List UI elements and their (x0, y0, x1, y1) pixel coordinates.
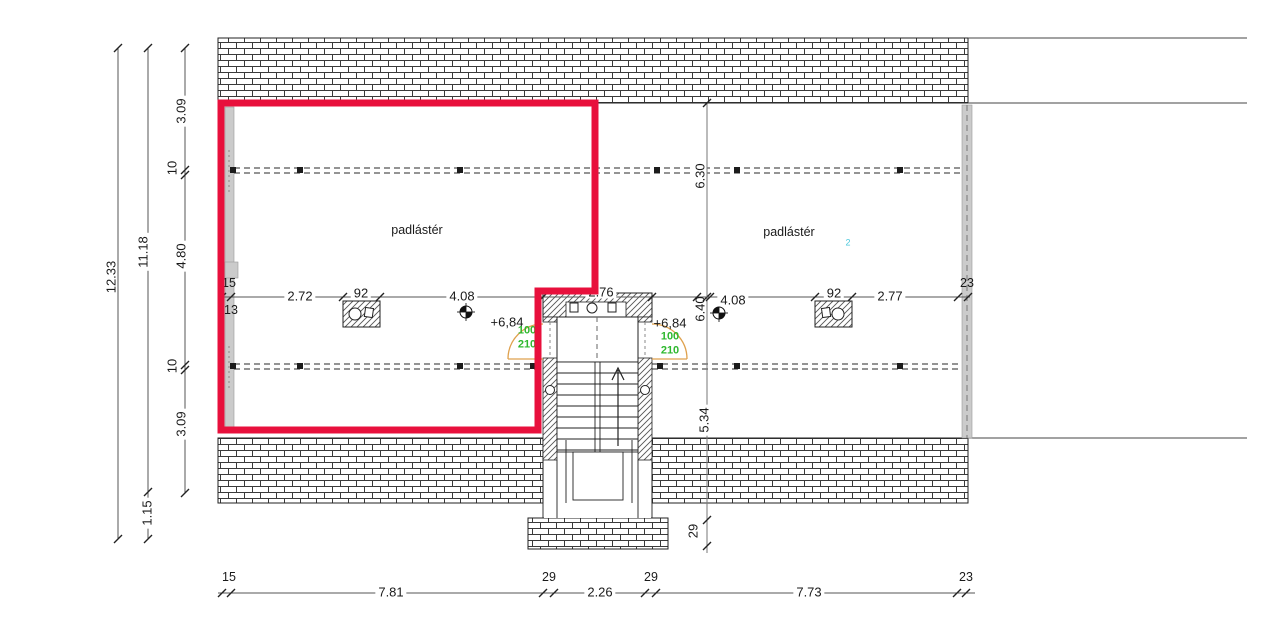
dim-b-w1: 15 (222, 571, 236, 584)
dim-stair-width: 2.76 (585, 286, 616, 299)
door-size-right-height: 210 (661, 346, 679, 357)
dim-eave: 1.15 (141, 497, 154, 528)
dim-axis-wall: 29 (687, 524, 700, 538)
floor-plan-canvas: 12.33 11.18 1.15 3.09 10 4.80 10 3.09 6.… (0, 0, 1280, 644)
dim-chimney-right: 92 (824, 287, 844, 300)
dim-h1: 2.72 (284, 290, 315, 303)
dim-v2: 10 (166, 161, 179, 175)
dim-inner-height: 11.18 (137, 233, 150, 271)
door-size-left-height: 210 (518, 340, 536, 351)
room-label-right: padlástér (763, 226, 814, 239)
level-marker-icon (457, 303, 475, 321)
dim-v1: 3.09 (175, 95, 188, 126)
right-gable-wall (962, 105, 972, 438)
dim-b3: 7.73 (793, 586, 824, 599)
top-wall (218, 38, 1247, 103)
room-index-right: 2 (845, 239, 850, 248)
left-gable-wall (225, 107, 238, 431)
dim-v5: 3.09 (175, 408, 188, 439)
entry-porch-wall (528, 518, 668, 549)
dim-b2: 2.26 (584, 586, 615, 599)
dim-v3: 4.80 (175, 240, 188, 271)
dim-axis-low: 5.34 (698, 404, 711, 435)
chimney-left (343, 301, 380, 327)
dim-wall-left-a: 15 (222, 277, 236, 290)
dim-b-w3: 29 (644, 571, 658, 584)
room-label-left: padlástér (391, 224, 442, 237)
dim-h2: 4.08 (446, 290, 477, 303)
dim-chimney-left: 92 (351, 287, 371, 300)
dim-total-height: 12.33 (105, 258, 118, 297)
dim-v4: 10 (166, 359, 179, 373)
dim-b-w4: 23 (959, 571, 973, 584)
dim-b1: 7.81 (375, 586, 406, 599)
door-size-left-width: 100 (518, 326, 536, 337)
bottom-wall (218, 438, 1247, 549)
door-size-right-width: 100 (661, 332, 679, 343)
dim-h3: 4.08 (717, 294, 748, 307)
dim-b-w2: 29 (542, 571, 556, 584)
level-value-right: +6,84 (654, 317, 687, 330)
dim-wall-right: 23 (960, 277, 974, 290)
dim-h4: 2.77 (874, 290, 905, 303)
dim-axis-mid: 6.40 (694, 296, 707, 321)
dim-wall-left-b: 13 (224, 304, 238, 317)
chimney-right (815, 301, 852, 327)
dim-axis-top: 6.30 (694, 160, 707, 191)
floor-plan-drawing (0, 0, 1280, 644)
